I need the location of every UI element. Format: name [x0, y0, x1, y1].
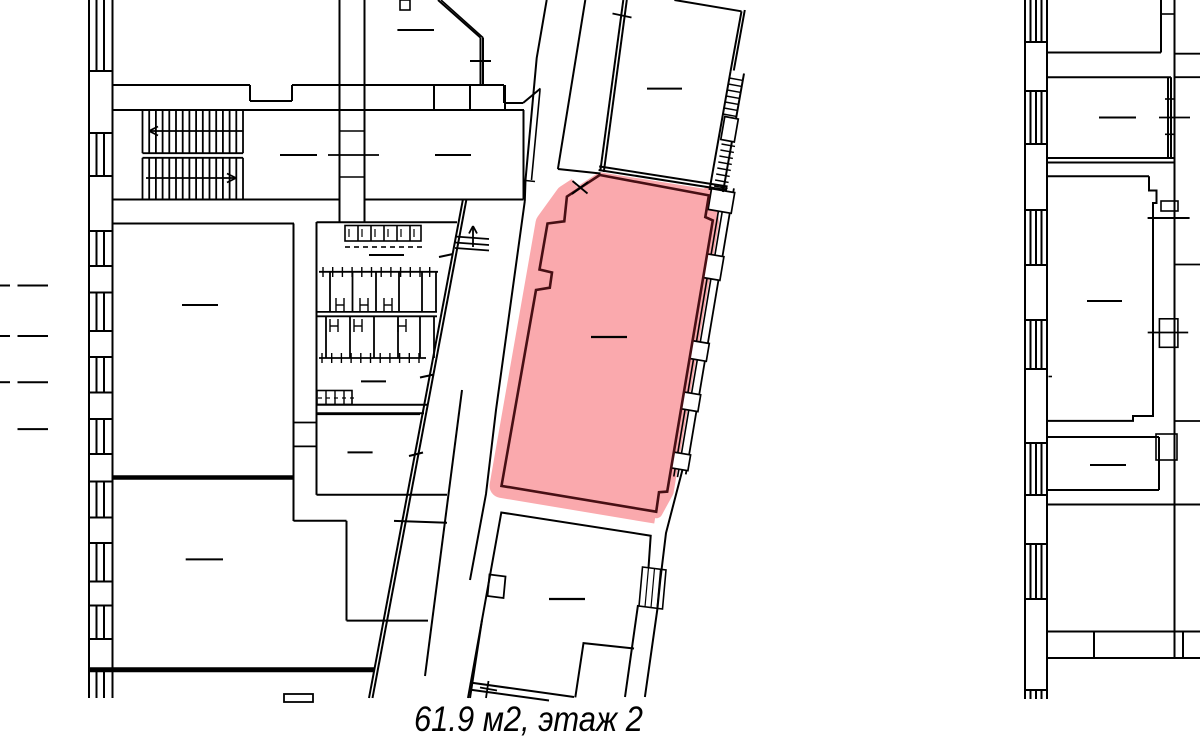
- svg-text:61.9 м2, этаж 2: 61.9 м2, этаж 2: [414, 700, 643, 739]
